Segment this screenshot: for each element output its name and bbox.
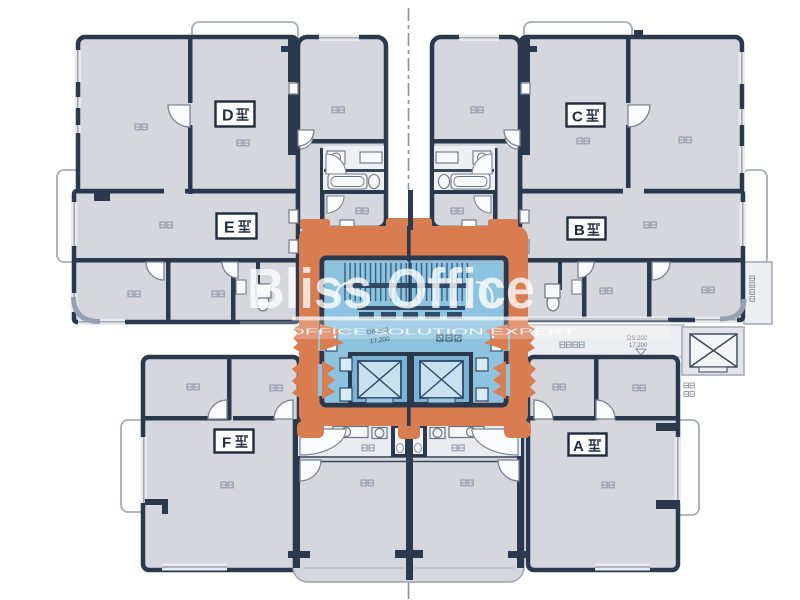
svg-text:WWW.BLISSOFFICE.COM: WWW.BLISSOFFICE.COM	[172, 330, 276, 337]
svg-text:Bliss Office: Bliss Office	[247, 257, 535, 321]
svg-text:D: D	[222, 108, 234, 125]
svg-text:C: C	[572, 109, 583, 126]
svg-text:B: B	[574, 222, 585, 239]
svg-text:17,200: 17,200	[629, 343, 648, 349]
svg-text:E: E	[224, 220, 235, 237]
svg-text:F: F	[222, 435, 231, 452]
svg-text:A: A	[573, 438, 584, 455]
svg-text:OFFICE SOLUTION EXPERT: OFFICE SOLUTION EXPERT	[288, 327, 576, 337]
